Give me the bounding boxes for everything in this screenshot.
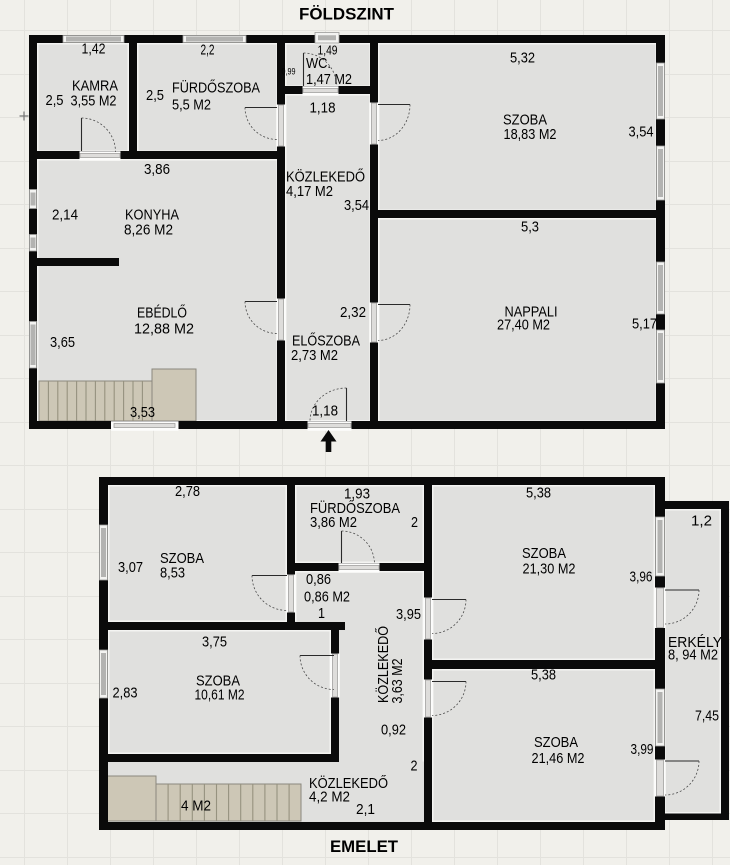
svg-text:FÖLDSZINT: FÖLDSZINT [299,5,395,24]
svg-text:1: 1 [318,605,325,622]
svg-text:FÜRDŐSZOBA: FÜRDŐSZOBA [172,79,260,97]
svg-text:3,65: 3,65 [50,334,75,351]
svg-text:2: 2 [411,514,418,531]
svg-text:2,83: 2,83 [113,685,138,702]
svg-text:10,61 M2: 10,61 M2 [195,687,245,704]
svg-text:8, 94 M2: 8, 94 M2 [668,647,718,664]
svg-text:3,86: 3,86 [144,161,170,178]
svg-text:5,38: 5,38 [531,667,556,684]
svg-text:3,63 M2: 3,63 M2 [389,659,406,704]
svg-text:2,32: 2,32 [340,304,366,321]
svg-text:WC.: WC. [306,55,331,72]
svg-text:2,5: 2,5 [46,92,64,109]
svg-text:1,49: 1,49 [318,44,338,58]
svg-text:1,47 M2: 1,47 M2 [306,71,352,88]
svg-text:8,26 M2: 8,26 M2 [124,222,173,239]
svg-text:5,38: 5,38 [526,485,551,502]
svg-text:4,2 M2: 4,2 M2 [309,789,350,806]
svg-text:2,14: 2,14 [52,207,78,224]
svg-text:4,17 M2: 4,17 M2 [286,183,333,200]
svg-text:SZOBA: SZOBA [522,545,566,562]
svg-text:5,5 M2: 5,5 M2 [172,97,211,114]
svg-text:SZOBA: SZOBA [534,734,578,751]
svg-text:21,30 M2: 21,30 M2 [523,561,576,578]
svg-text:8,53: 8,53 [160,565,185,582]
svg-text:1,42: 1,42 [82,41,106,58]
svg-text:2,73 M2: 2,73 M2 [291,347,338,364]
svg-text:2,2: 2,2 [201,42,215,59]
svg-text:0,86: 0,86 [306,571,331,588]
svg-text:5,17: 5,17 [632,316,657,333]
svg-text:0,99: 0,99 [282,67,296,77]
svg-text:EMELET: EMELET [330,837,399,856]
svg-text:12,88 M2: 12,88 M2 [134,321,194,338]
svg-text:5,3: 5,3 [521,219,539,236]
svg-text:3,53: 3,53 [130,404,155,421]
svg-text:3,96: 3,96 [630,569,653,586]
svg-text:2,5: 2,5 [146,87,164,104]
svg-text:27,40 M2: 27,40 M2 [497,317,550,334]
svg-text:0,86 M2: 0,86 M2 [304,589,350,606]
svg-text:1,18: 1,18 [312,403,338,420]
svg-text:21,46 M2: 21,46 M2 [532,750,585,767]
svg-text:4 M2: 4 M2 [181,798,211,815]
svg-text:3,86 M2: 3,86 M2 [310,514,357,531]
svg-text:3,75: 3,75 [202,634,227,651]
svg-text:2,1: 2,1 [356,801,375,818]
svg-text:3,54: 3,54 [629,124,654,141]
svg-text:3,07: 3,07 [118,559,143,576]
svg-text:2,78: 2,78 [175,483,200,500]
svg-text:3,55 M2: 3,55 M2 [71,93,117,110]
svg-text:3,95: 3,95 [396,606,421,623]
svg-text:EBÉDLŐ: EBÉDLŐ [137,305,187,322]
svg-text:1,18: 1,18 [310,100,336,117]
svg-text:3,99: 3,99 [631,741,654,758]
svg-text:3,54: 3,54 [344,197,369,214]
svg-text:1,2: 1,2 [691,513,712,530]
svg-text:2: 2 [411,758,418,775]
svg-text:5,32: 5,32 [510,50,535,67]
svg-text:0,92: 0,92 [381,722,406,739]
svg-text:18,83 M2: 18,83 M2 [504,126,557,143]
svg-text:7,45: 7,45 [695,708,719,725]
